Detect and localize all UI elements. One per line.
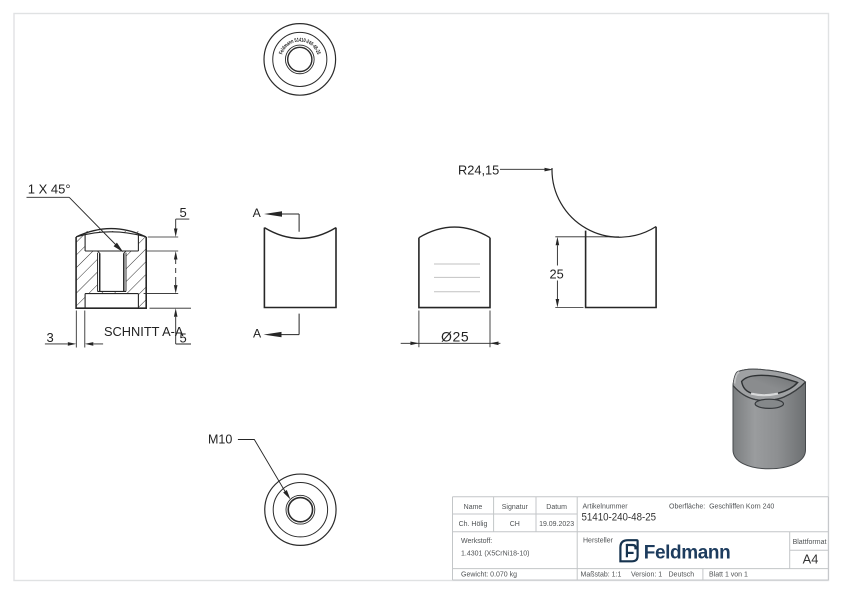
svg-text:Blatt 1 von 1: Blatt 1 von 1 xyxy=(709,572,748,579)
svg-text:Ch. Hölig: Ch. Hölig xyxy=(459,521,488,528)
svg-text:Feldmann: Feldmann xyxy=(644,542,731,563)
svg-text:SCHNITT A-A: SCHNITT A-A xyxy=(104,324,184,339)
svg-text:1.4301 (X5CrNi18-10): 1.4301 (X5CrNi18-10) xyxy=(461,551,529,558)
svg-text:3: 3 xyxy=(47,330,54,345)
svg-text:Hersteller: Hersteller xyxy=(583,538,614,545)
svg-text:A4: A4 xyxy=(803,551,819,566)
svg-text:19.09.2023: 19.09.2023 xyxy=(539,521,574,528)
svg-text:Werkstoff:: Werkstoff: xyxy=(461,538,492,545)
svg-text:M10: M10 xyxy=(208,433,232,447)
svg-text:A: A xyxy=(253,206,262,220)
svg-text:Oberfläche: Geschliffen Korn: Oberfläche: Geschliffen Korn 240 xyxy=(669,504,774,511)
svg-text:25: 25 xyxy=(550,267,564,282)
svg-text:Artikelnummer: Artikelnummer xyxy=(583,504,629,511)
svg-text:Gewicht: 0.070 kg: Gewicht: 0.070 kg xyxy=(461,572,517,579)
svg-text:Blattformat: Blattformat xyxy=(793,539,827,546)
svg-text:Signatur: Signatur xyxy=(502,504,529,511)
svg-text:CH: CH xyxy=(510,521,520,528)
svg-text:Maßstab: 1:1: Maßstab: 1:1 xyxy=(581,572,622,579)
svg-text:51410-240-48-25: 51410-240-48-25 xyxy=(582,511,657,523)
svg-text:5: 5 xyxy=(180,205,187,220)
svg-text:Version: 1: Version: 1 xyxy=(631,572,662,579)
svg-text:Deutsch: Deutsch xyxy=(669,572,695,579)
svg-text:A: A xyxy=(253,327,262,341)
svg-text:Ø25: Ø25 xyxy=(441,329,469,345)
svg-text:Datum: Datum xyxy=(546,504,567,511)
svg-text:1 X 45°: 1 X 45° xyxy=(28,182,71,197)
svg-text:R24,15: R24,15 xyxy=(458,163,499,178)
svg-text:Name: Name xyxy=(464,504,483,511)
